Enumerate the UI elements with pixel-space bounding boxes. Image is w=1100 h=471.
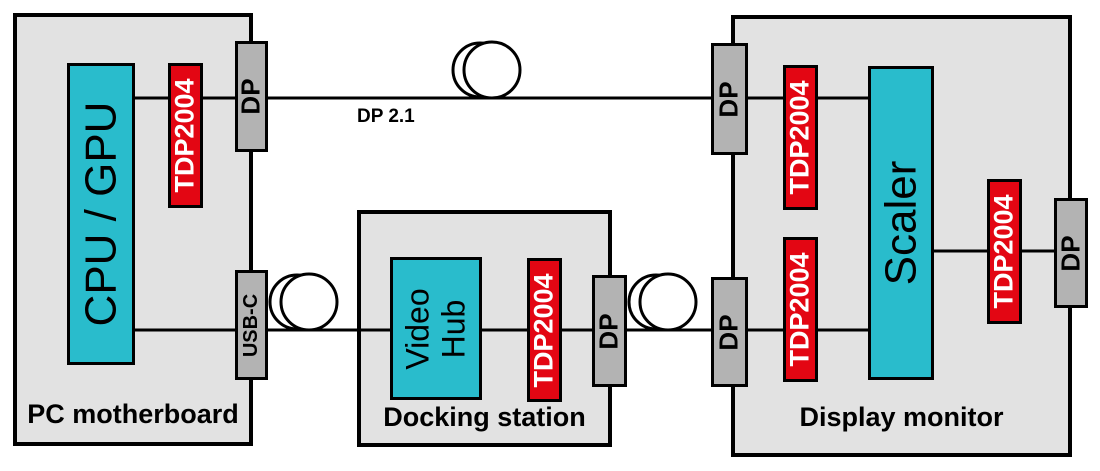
video-hub-label: Video Hub: [400, 288, 472, 369]
dp-connector-monitor-right: DP: [1054, 198, 1088, 308]
scaler-block: Scaler: [868, 66, 934, 380]
tdp2004-label: TDP2004: [785, 80, 816, 194]
dp-connector-label: DP: [714, 314, 745, 350]
dp-connector-label: DP: [236, 78, 267, 114]
tdp2004-retimer-monitor-top: TDP2004: [783, 65, 818, 210]
scaler-label: Scaler: [876, 161, 926, 286]
tdp2004-retimer-monitor-bottom: TDP2004: [783, 237, 818, 382]
tdp2004-label: TDP2004: [989, 194, 1020, 308]
cable-coil-icon: [453, 42, 520, 98]
dp21-cable-label: DP 2.1: [357, 106, 415, 128]
tdp2004-retimer-pc: TDP2004: [168, 63, 203, 208]
tdp2004-retimer-monitor-right: TDP2004: [987, 179, 1022, 324]
usbc-connector-pc: USB-C: [235, 270, 268, 380]
video-hub-block: Video Hub: [390, 257, 482, 400]
video-hub-label-line1: Video: [400, 288, 436, 369]
cpu-gpu-block: CPU / GPU: [67, 63, 135, 365]
cable-coil-icon: [629, 274, 696, 330]
dp-connector-dock: DP: [592, 275, 627, 387]
block-diagram: PC motherboard Docking station Display m…: [0, 0, 1100, 471]
dp-connector-label: DP: [714, 81, 745, 117]
tdp2004-label: TDP2004: [785, 252, 816, 366]
tdp2004-label: TDP2004: [170, 78, 201, 192]
dp-connector-label: DP: [594, 313, 625, 349]
dp-connector-monitor-top: DP: [711, 43, 748, 155]
tdp2004-retimer-dock: TDP2004: [527, 258, 562, 402]
dp-connector-pc: DP: [235, 41, 268, 152]
tdp2004-label: TDP2004: [529, 273, 560, 387]
dp-connector-monitor-bottom: DP: [711, 277, 748, 387]
usbc-connector-label: USB-C: [240, 293, 263, 356]
cpu-gpu-label: CPU / GPU: [76, 102, 126, 327]
cable-coil-icon: [270, 274, 337, 330]
video-hub-label-line2: Hub: [436, 288, 472, 369]
dp-connector-label: DP: [1056, 235, 1087, 271]
